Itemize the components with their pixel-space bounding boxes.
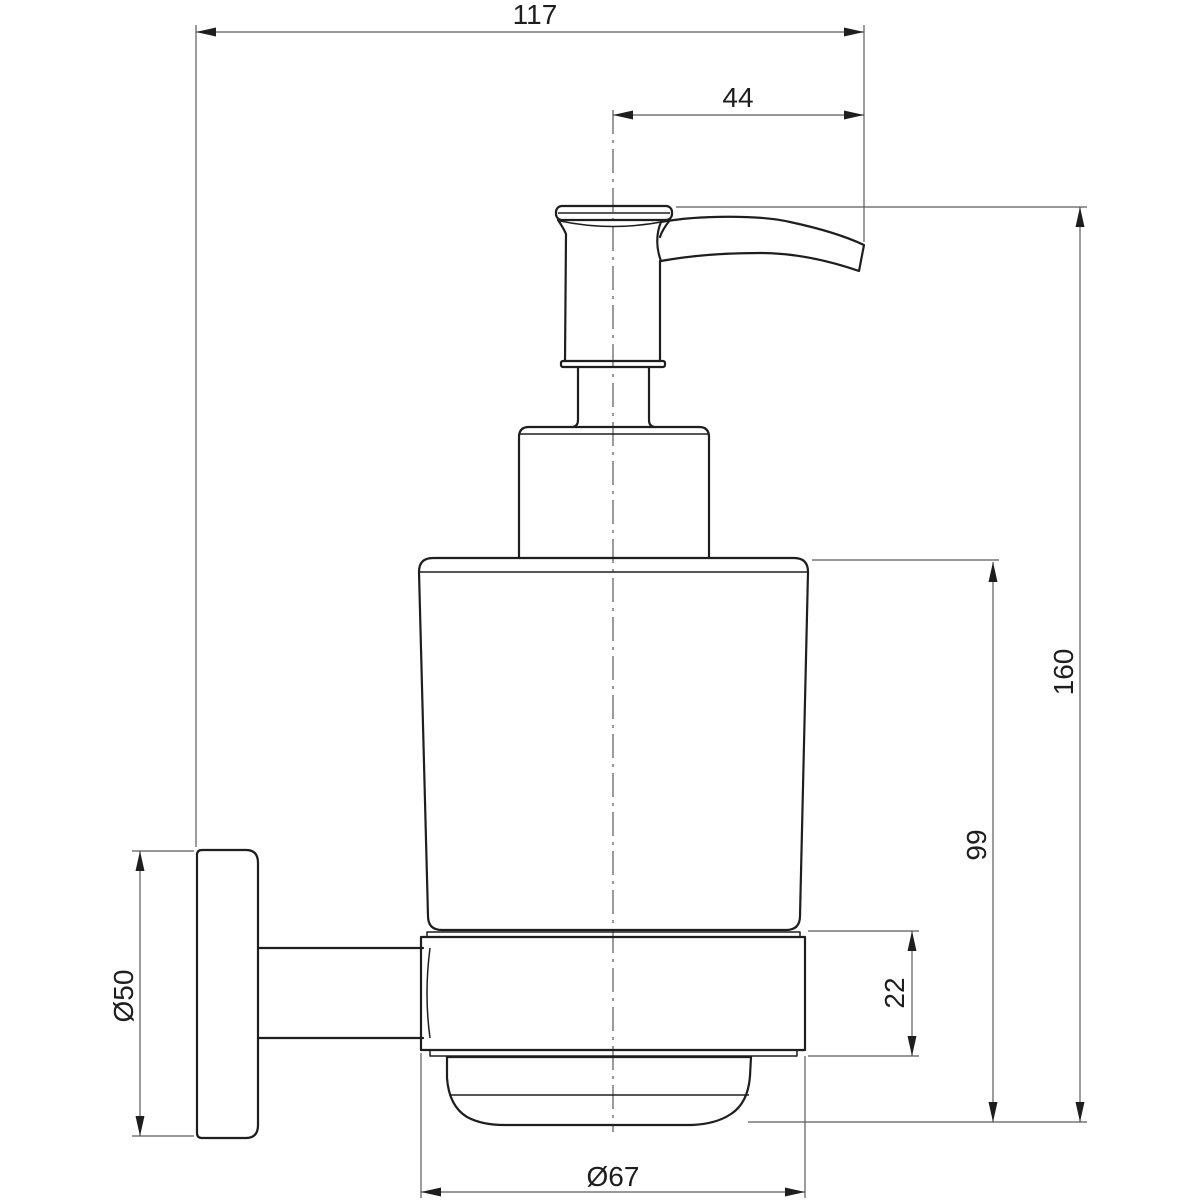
dim-arrowhead-right	[844, 28, 864, 37]
dim-arrowhead-left	[421, 1188, 441, 1197]
dim-arrowhead-left	[613, 111, 633, 120]
dim-arrowhead-top	[136, 851, 145, 871]
dim-arrowhead-right	[844, 111, 864, 120]
arm-ring-fillet	[427, 948, 430, 1038]
dim-label-ring-height: 22	[879, 977, 910, 1008]
holder-ring	[421, 937, 805, 1050]
dim-arrowhead-left	[196, 28, 216, 37]
extension-line	[132, 851, 194, 1136]
dim-arrowhead-bottom	[1076, 1102, 1085, 1122]
dim-label-glass-diameter: Ø67	[587, 1161, 640, 1192]
dim-overall-width: 117	[196, 0, 864, 847]
glass-cup-bottom	[447, 1057, 751, 1125]
dim-arrowhead-top	[908, 931, 917, 951]
dim-label-body-height: 99	[961, 829, 992, 860]
dim-arrowhead-bottom	[908, 1036, 917, 1056]
dim-ring-height: 22	[808, 931, 919, 1056]
soap-dispenser-drawing: 117 44 160 99 22 Ø50	[0, 0, 1200, 1200]
wall-plate	[197, 850, 258, 1138]
pump-body	[558, 220, 660, 361]
technical-drawing-canvas: 117 44 160 99 22 Ø50	[0, 0, 1200, 1200]
dispenser-outline	[197, 206, 864, 1138]
mounting-arm	[258, 948, 423, 1038]
dim-label-plate-diameter: Ø50	[108, 970, 139, 1023]
extension-line	[196, 25, 864, 847]
dim-arrowhead-bottom	[136, 1116, 145, 1136]
dim-arrowhead-right	[785, 1188, 805, 1197]
pump-spout	[657, 217, 864, 271]
dim-label-overall-height: 160	[1048, 649, 1079, 696]
dim-label-overall-width: 117	[513, 0, 558, 30]
dim-arrowhead-top	[989, 562, 998, 582]
bottle-collar	[519, 427, 709, 558]
dim-arrowhead-bottom	[989, 1102, 998, 1122]
dim-body-height: 99	[812, 560, 999, 1122]
dim-spout-projection: 44	[613, 82, 864, 120]
dim-arrowhead-top	[1076, 207, 1085, 227]
dim-label-spout-projection: 44	[722, 82, 753, 113]
pump-cap-underside	[560, 221, 666, 227]
dim-plate-diameter: Ø50	[108, 851, 194, 1136]
